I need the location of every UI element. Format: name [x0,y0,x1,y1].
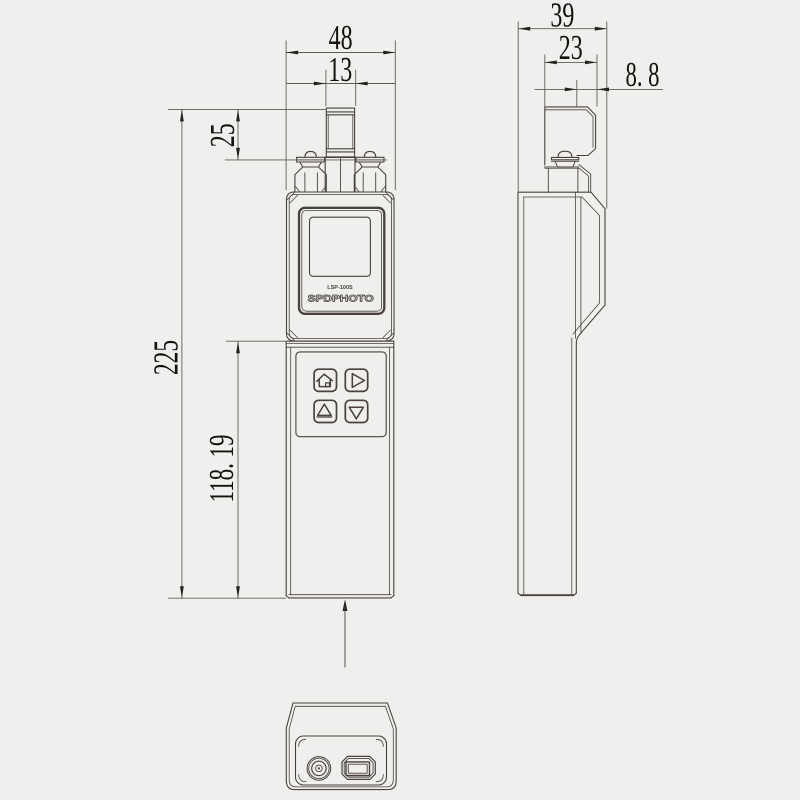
svg-text:13: 13 [328,50,352,89]
svg-text:23: 23 [559,28,583,67]
svg-text:SPDPHOTO: SPDPHOTO [308,293,374,303]
svg-text:25: 25 [203,123,242,147]
svg-text:118. 19: 118. 19 [202,435,241,503]
svg-text:LSP-100S: LSP-100S [327,285,353,291]
svg-text:8. 8: 8. 8 [626,55,660,94]
svg-text:225: 225 [147,340,186,375]
